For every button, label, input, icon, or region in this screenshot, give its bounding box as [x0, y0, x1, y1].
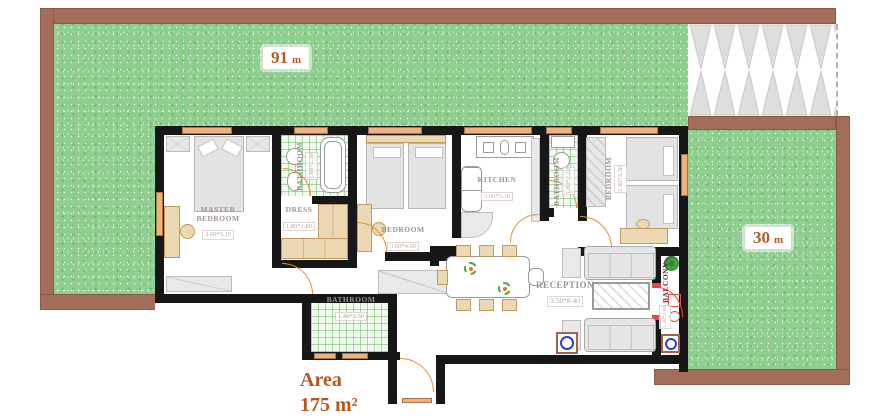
- area-value: 175 m²: [300, 393, 358, 418]
- pillow-icon: [663, 146, 674, 176]
- room-name: Bathroom: [295, 142, 304, 191]
- bed: [408, 143, 446, 209]
- room-name: Bathroom: [314, 296, 388, 305]
- chair: [437, 270, 448, 285]
- room-dimension: 3.60*4.00: [387, 242, 419, 251]
- garden-left-strip: [54, 126, 155, 294]
- sofa: [584, 318, 656, 352]
- room-dimension: 1.80*1.80: [283, 222, 315, 231]
- window: [182, 127, 232, 134]
- wardrobe: [281, 238, 348, 259]
- wall: [388, 294, 397, 404]
- room-dimension: 3.50*8.40: [547, 296, 583, 307]
- pillow-icon: [663, 194, 674, 224]
- room-label-bathroom-3: Bathroom 1.40*2.50: [314, 296, 388, 323]
- pillow-icon: [373, 147, 401, 158]
- window: [600, 127, 658, 134]
- fence-left: [40, 8, 54, 310]
- room-name: Reception: [518, 280, 612, 290]
- bathroom-door-marker: [342, 353, 368, 359]
- washing-machine-icon: [661, 334, 680, 353]
- wall: [302, 294, 311, 360]
- room-name: Master Bedroom: [178, 206, 258, 223]
- room-dimension: 1.60*2.50: [305, 152, 318, 180]
- burner-icon: [500, 140, 509, 155]
- chair: [479, 245, 494, 257]
- garden-side-unit: m: [774, 234, 783, 246]
- fence-divider: [688, 116, 836, 130]
- wall: [540, 208, 554, 217]
- wall: [312, 196, 351, 204]
- floor-plan: Master Bedroom 3.60*5.20 Dress 1.80*1.80…: [0, 0, 870, 420]
- chair: [479, 299, 494, 311]
- room-name: Balcony: [661, 262, 670, 303]
- window: [294, 127, 328, 134]
- room-dimension: 1.20*3.00: [659, 305, 671, 329]
- bed: [626, 185, 678, 229]
- chair: [456, 245, 471, 257]
- chair: [636, 219, 650, 229]
- total-area-label: Area 175 m²: [300, 368, 358, 418]
- room-label-bedroom-3: Bedroom 3.40*3.30: [604, 148, 627, 210]
- garden-front-label: 91 m: [262, 46, 310, 70]
- nightstand: [246, 136, 270, 152]
- room-dimension: 3.60*5.20: [202, 230, 234, 239]
- room-name: Kitchen: [466, 176, 528, 185]
- garden-front-unit: m: [292, 54, 301, 66]
- sofa: [584, 246, 656, 280]
- table-decor-icon: [498, 282, 511, 295]
- wall: [452, 126, 461, 238]
- wall: [348, 126, 357, 268]
- stove: [476, 136, 534, 158]
- side-table: [562, 248, 581, 278]
- room-dimension: 1.40*2.50: [335, 312, 367, 321]
- fence-right: [836, 116, 850, 385]
- pillow-icon: [415, 147, 443, 158]
- room-label-bathroom-ensuite: Bathroom 1.60*2.50: [295, 138, 318, 194]
- wardrobe: [318, 204, 348, 240]
- garden-side-label: 30 m: [744, 226, 792, 250]
- room-label-bedroom-2: Bedroom 3.60*4.00: [363, 226, 443, 253]
- garden-side-value: 30: [753, 228, 770, 247]
- room-label-master: Master Bedroom 3.60*5.20: [178, 206, 258, 242]
- bathtub: [320, 137, 346, 193]
- room-name: Bedroom: [363, 226, 443, 235]
- appliance-icon: [556, 332, 578, 354]
- room-label-bathroom-2: Bathroom 1.60*2.20: [552, 156, 575, 206]
- wardrobe: [586, 137, 606, 207]
- window: [156, 192, 163, 236]
- room-name: Bathroom: [552, 157, 561, 206]
- room-name: Bedroom: [604, 157, 613, 200]
- window: [464, 127, 532, 134]
- bed: [366, 143, 404, 209]
- fence-top: [40, 8, 836, 24]
- chair: [502, 299, 517, 311]
- burner-icon: [483, 142, 494, 153]
- window: [546, 127, 572, 134]
- wall: [272, 126, 281, 260]
- bathtub-inner: [324, 141, 342, 189]
- room-label-dress: Dress 1.80*1.80: [279, 206, 319, 233]
- area-word: Area: [300, 368, 358, 393]
- pillow-icon: [221, 138, 243, 157]
- vanity: [551, 136, 575, 148]
- entry-threshold: [402, 398, 432, 403]
- pillow-icon: [197, 138, 219, 157]
- desk: [620, 228, 668, 244]
- chair: [456, 299, 471, 311]
- room-label-kitchen: Kitchen 3.00*3.30: [466, 176, 528, 203]
- room-label-reception: Reception 3.50*8.40: [518, 280, 612, 309]
- burner-icon: [515, 142, 526, 153]
- bed: [626, 137, 678, 181]
- chair: [502, 245, 517, 257]
- chevron-pattern-icon: [688, 24, 836, 116]
- garden-front-value: 91: [271, 48, 288, 67]
- wall: [540, 126, 549, 221]
- room-dimension: 3.00*3.30: [481, 192, 513, 201]
- garden-front: [54, 24, 688, 126]
- wall: [436, 355, 688, 364]
- window: [681, 154, 688, 196]
- table-decor-icon: [464, 262, 477, 275]
- nightstand: [166, 136, 190, 152]
- room-label-balcony: Balcony 1.20*3.00: [659, 262, 671, 334]
- fence-bottom-left: [40, 294, 162, 310]
- wall: [155, 294, 311, 303]
- room-name: Dress: [279, 206, 319, 215]
- kitchen-counter: [531, 138, 540, 222]
- window: [314, 353, 336, 359]
- bed: [194, 136, 244, 212]
- window: [368, 127, 422, 134]
- wall: [436, 363, 445, 404]
- room-dimension: 1.60*2.20: [562, 167, 575, 195]
- dresser: [166, 276, 232, 292]
- headboard: [366, 135, 446, 143]
- driveway-hatch: [688, 24, 838, 116]
- room-dimension: 3.40*3.30: [614, 165, 627, 193]
